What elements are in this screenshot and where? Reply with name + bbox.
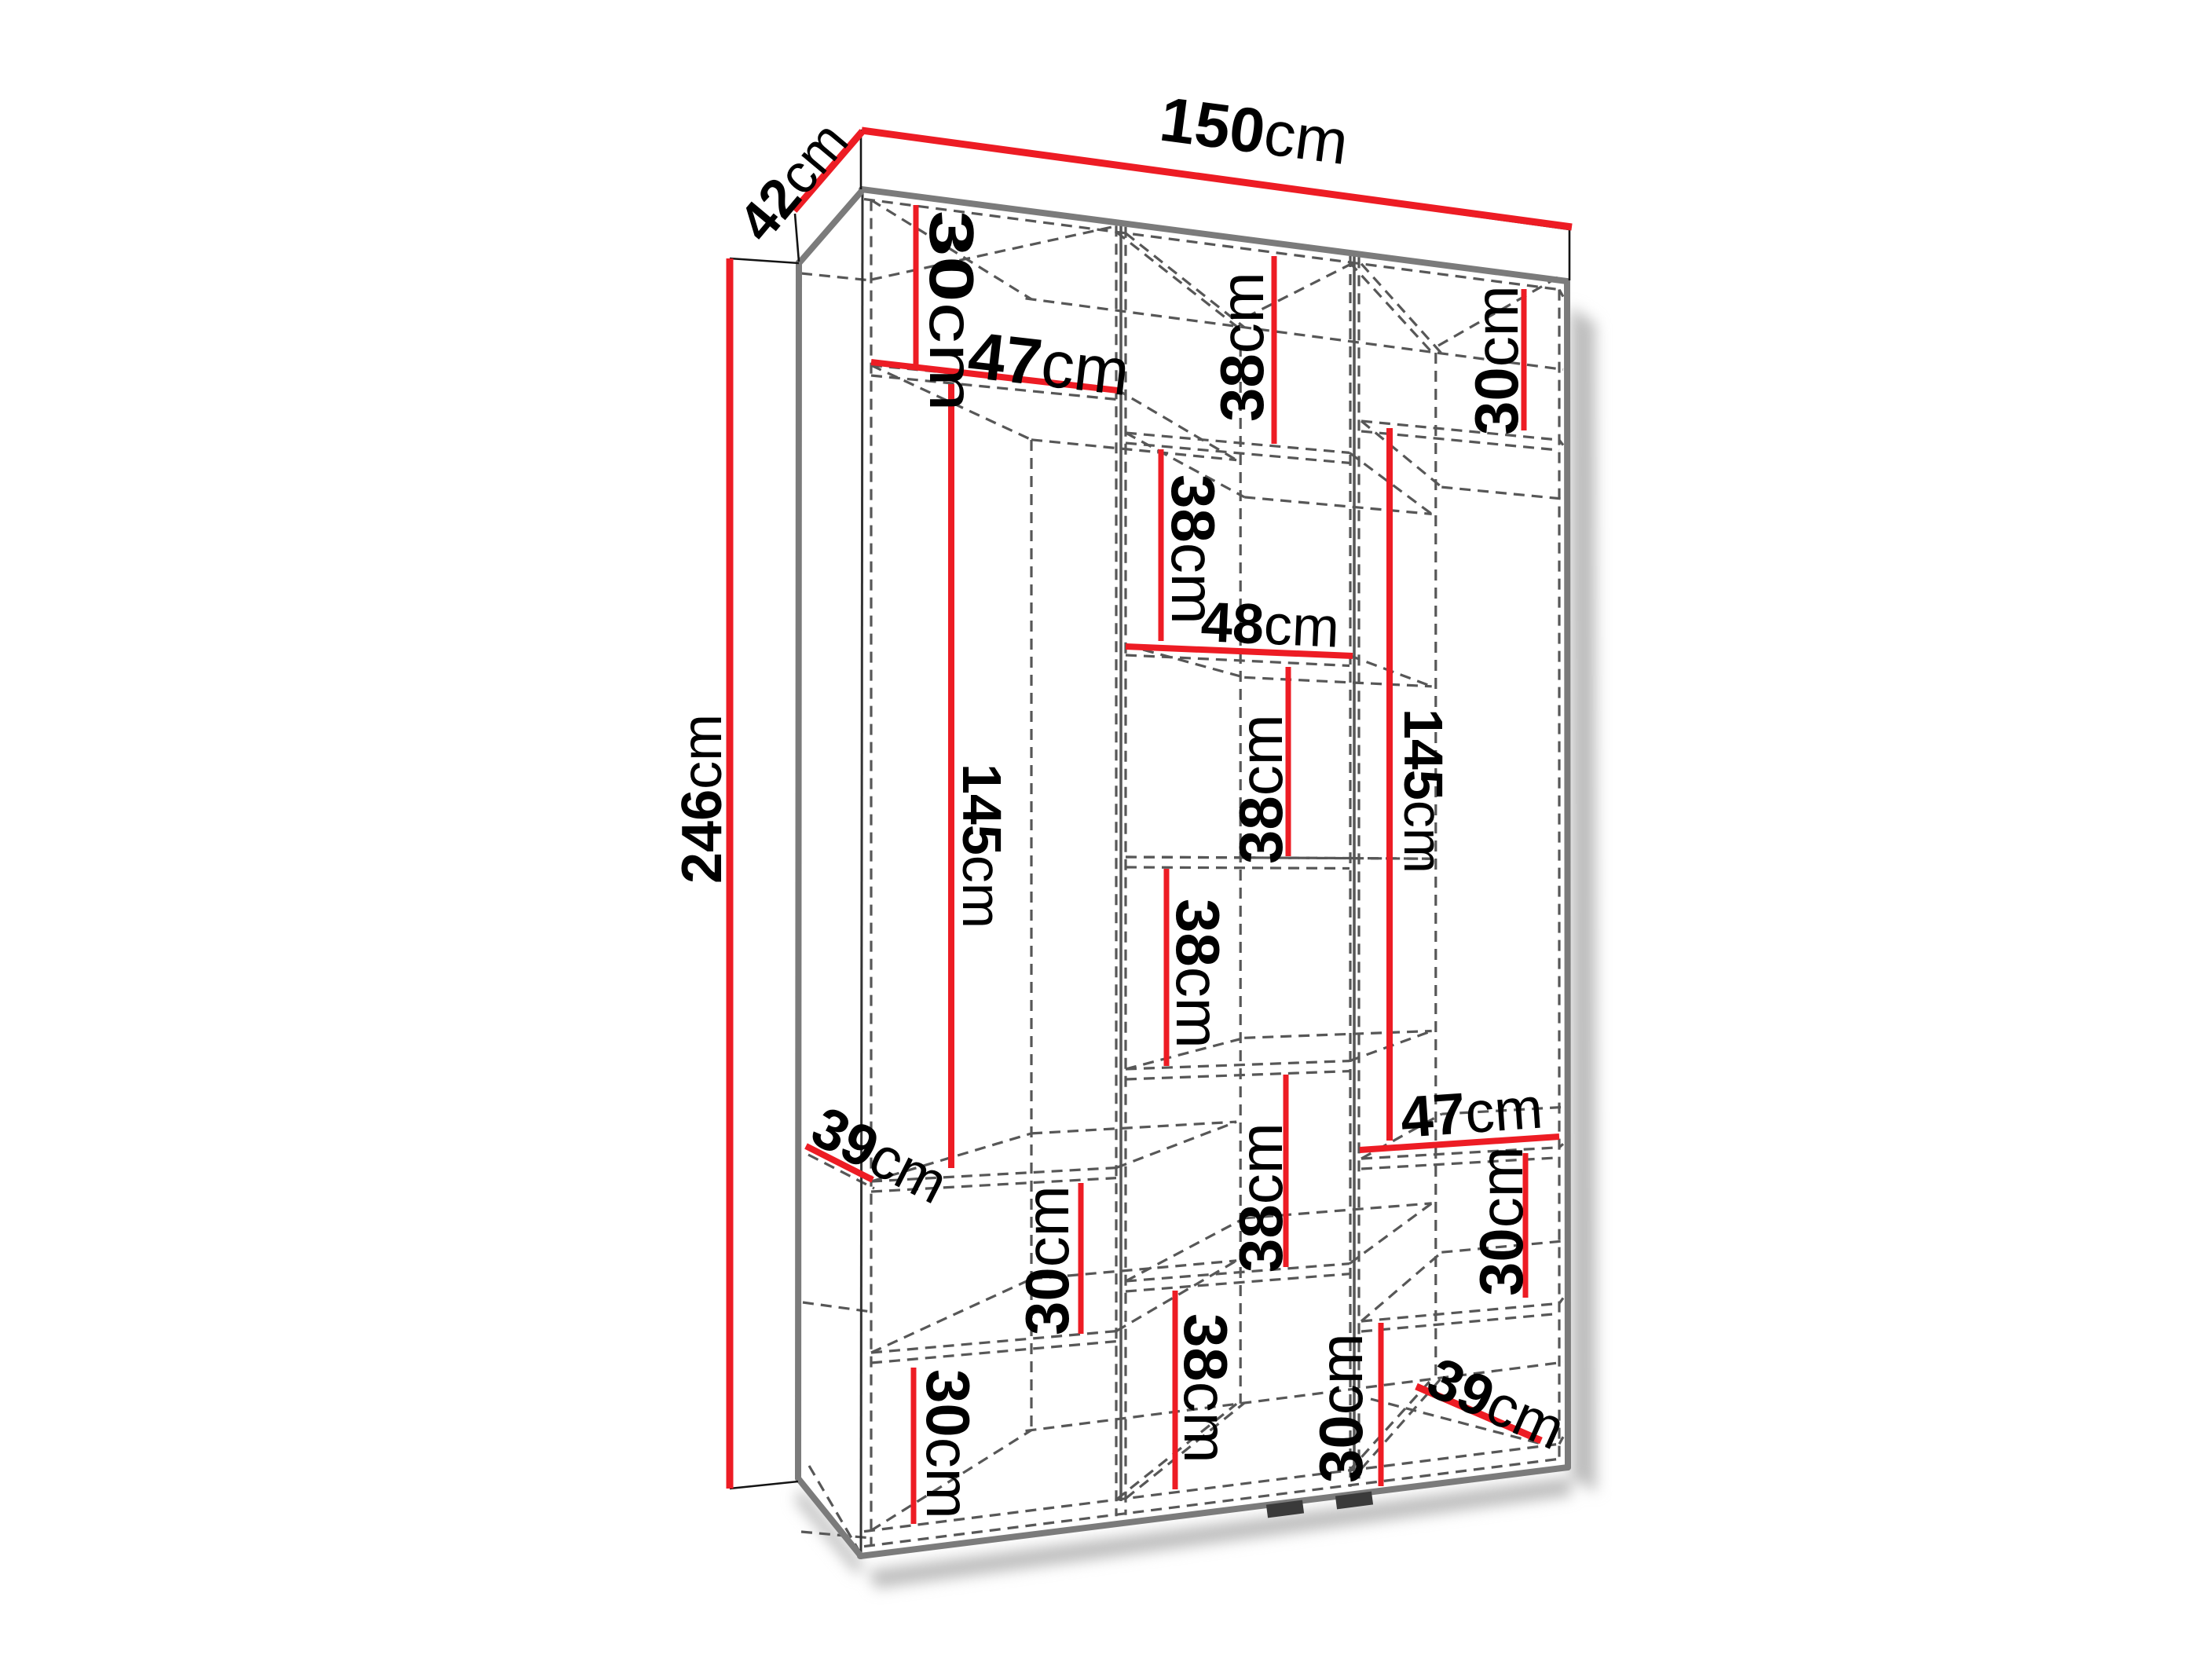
svg-text:246cm: 246cm <box>671 714 734 884</box>
svg-text:145cm: 145cm <box>1393 709 1454 873</box>
svg-text:30cm: 30cm <box>1462 285 1531 435</box>
svg-text:38cm: 38cm <box>1226 1122 1295 1273</box>
svg-text:30cm: 30cm <box>1013 1185 1082 1335</box>
svg-text:30cm: 30cm <box>1306 1333 1375 1483</box>
svg-text:48cm: 48cm <box>1199 591 1340 660</box>
svg-text:38cm: 38cm <box>1163 899 1232 1049</box>
svg-text:38cm: 38cm <box>1226 714 1295 864</box>
svg-text:30cm: 30cm <box>914 1369 983 1519</box>
svg-text:38cm: 38cm <box>1171 1313 1240 1463</box>
svg-text:38cm: 38cm <box>1207 272 1276 422</box>
svg-text:30cm: 30cm <box>1467 1146 1536 1296</box>
svg-text:145cm: 145cm <box>951 764 1013 928</box>
svg-text:47cm: 47cm <box>1398 1075 1544 1150</box>
